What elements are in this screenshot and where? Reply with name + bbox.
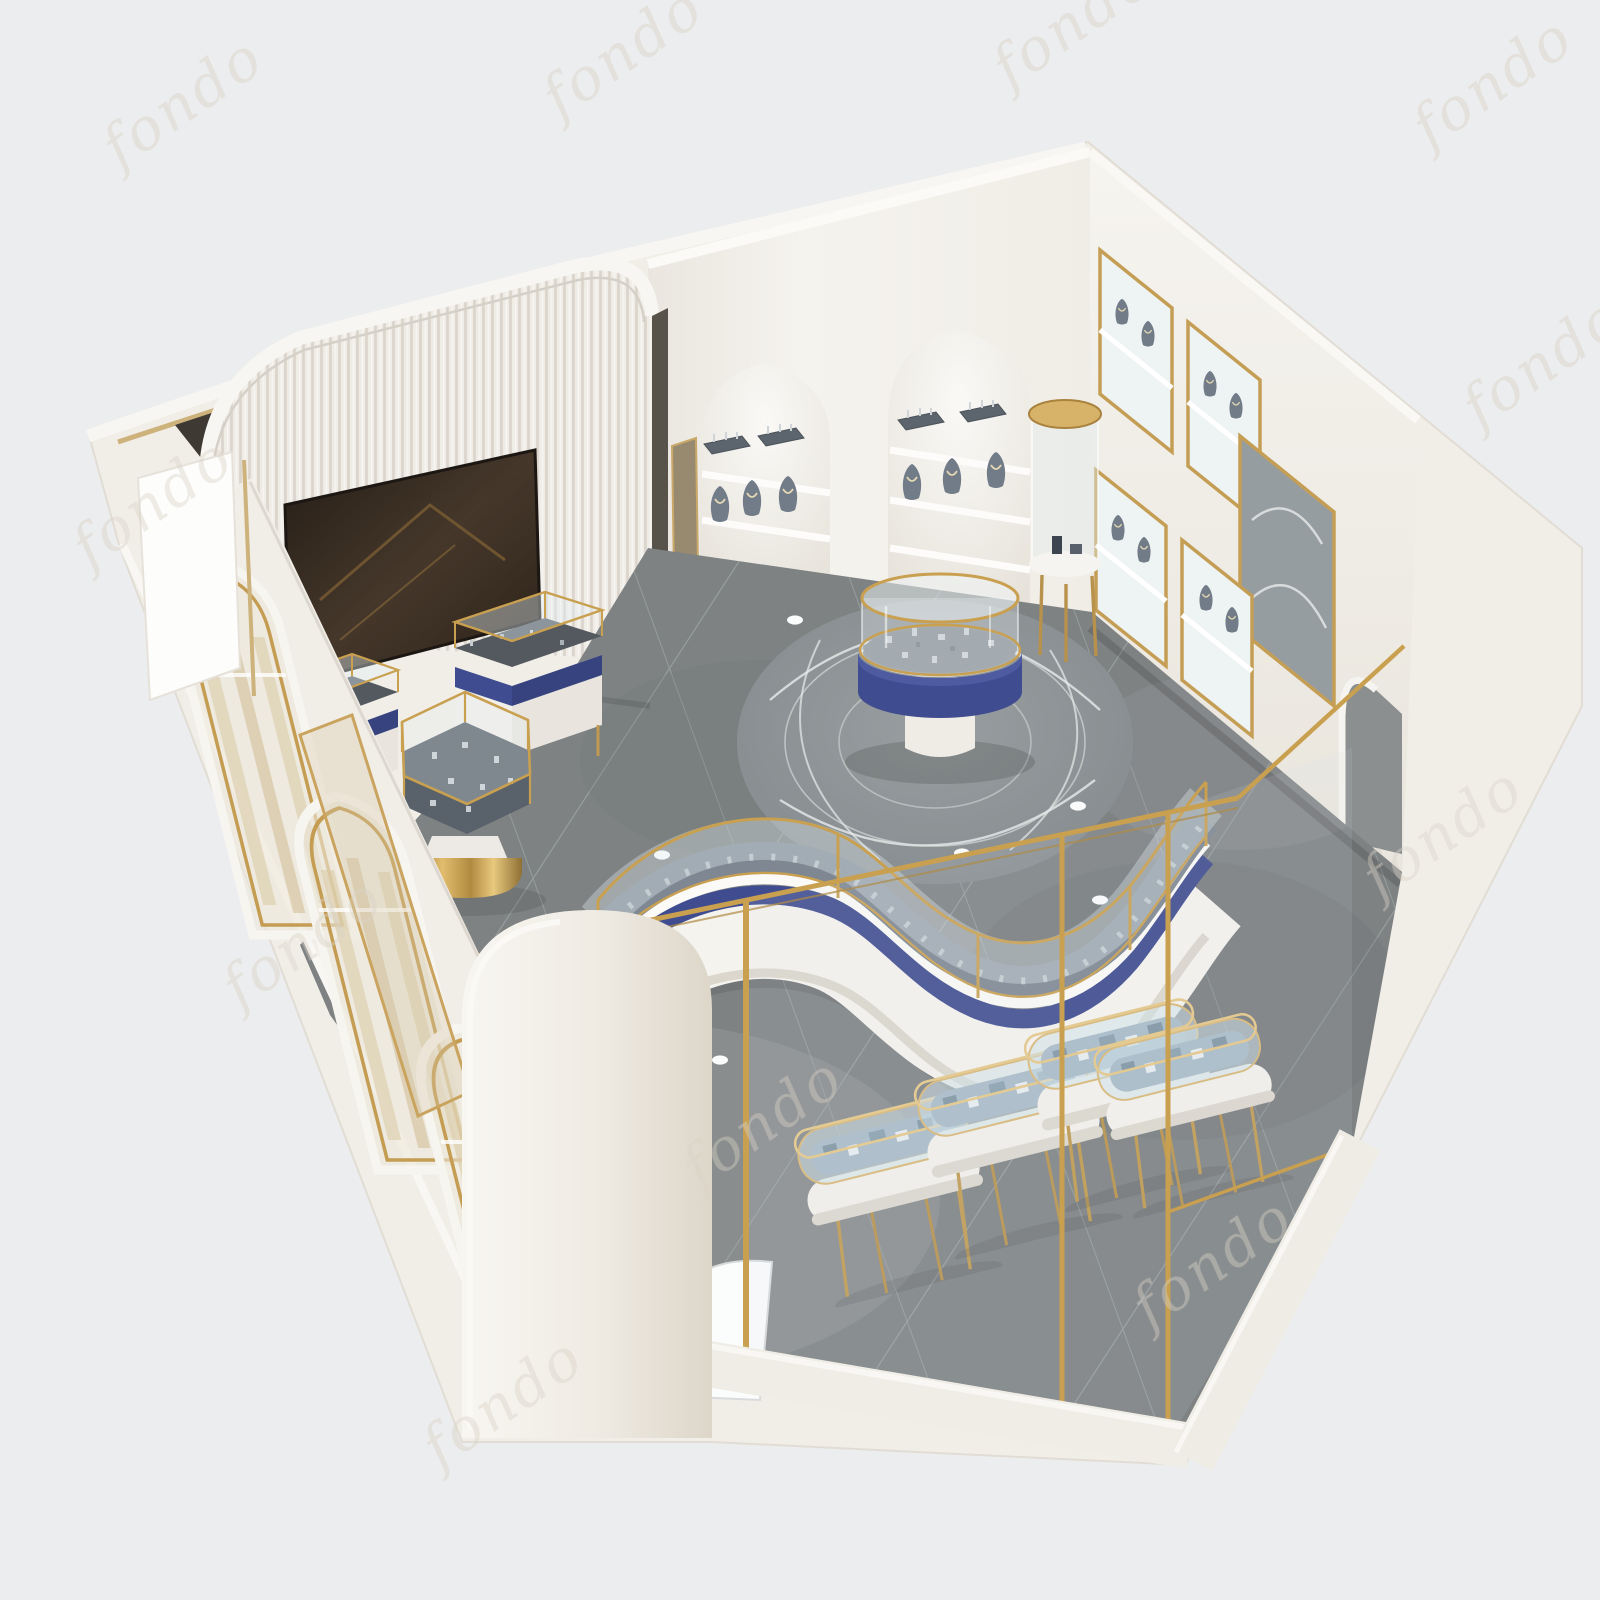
- central-round-vitrine: [845, 574, 1035, 784]
- jewelry-store-render: fondo fondo fondo fondo fondo fondo fond…: [0, 0, 1600, 1600]
- scene-canvas: fondo fondo fondo fondo fondo fondo fond…: [0, 0, 1600, 1600]
- wall-divider-gap: [652, 308, 668, 580]
- entrance-column: [462, 910, 712, 1438]
